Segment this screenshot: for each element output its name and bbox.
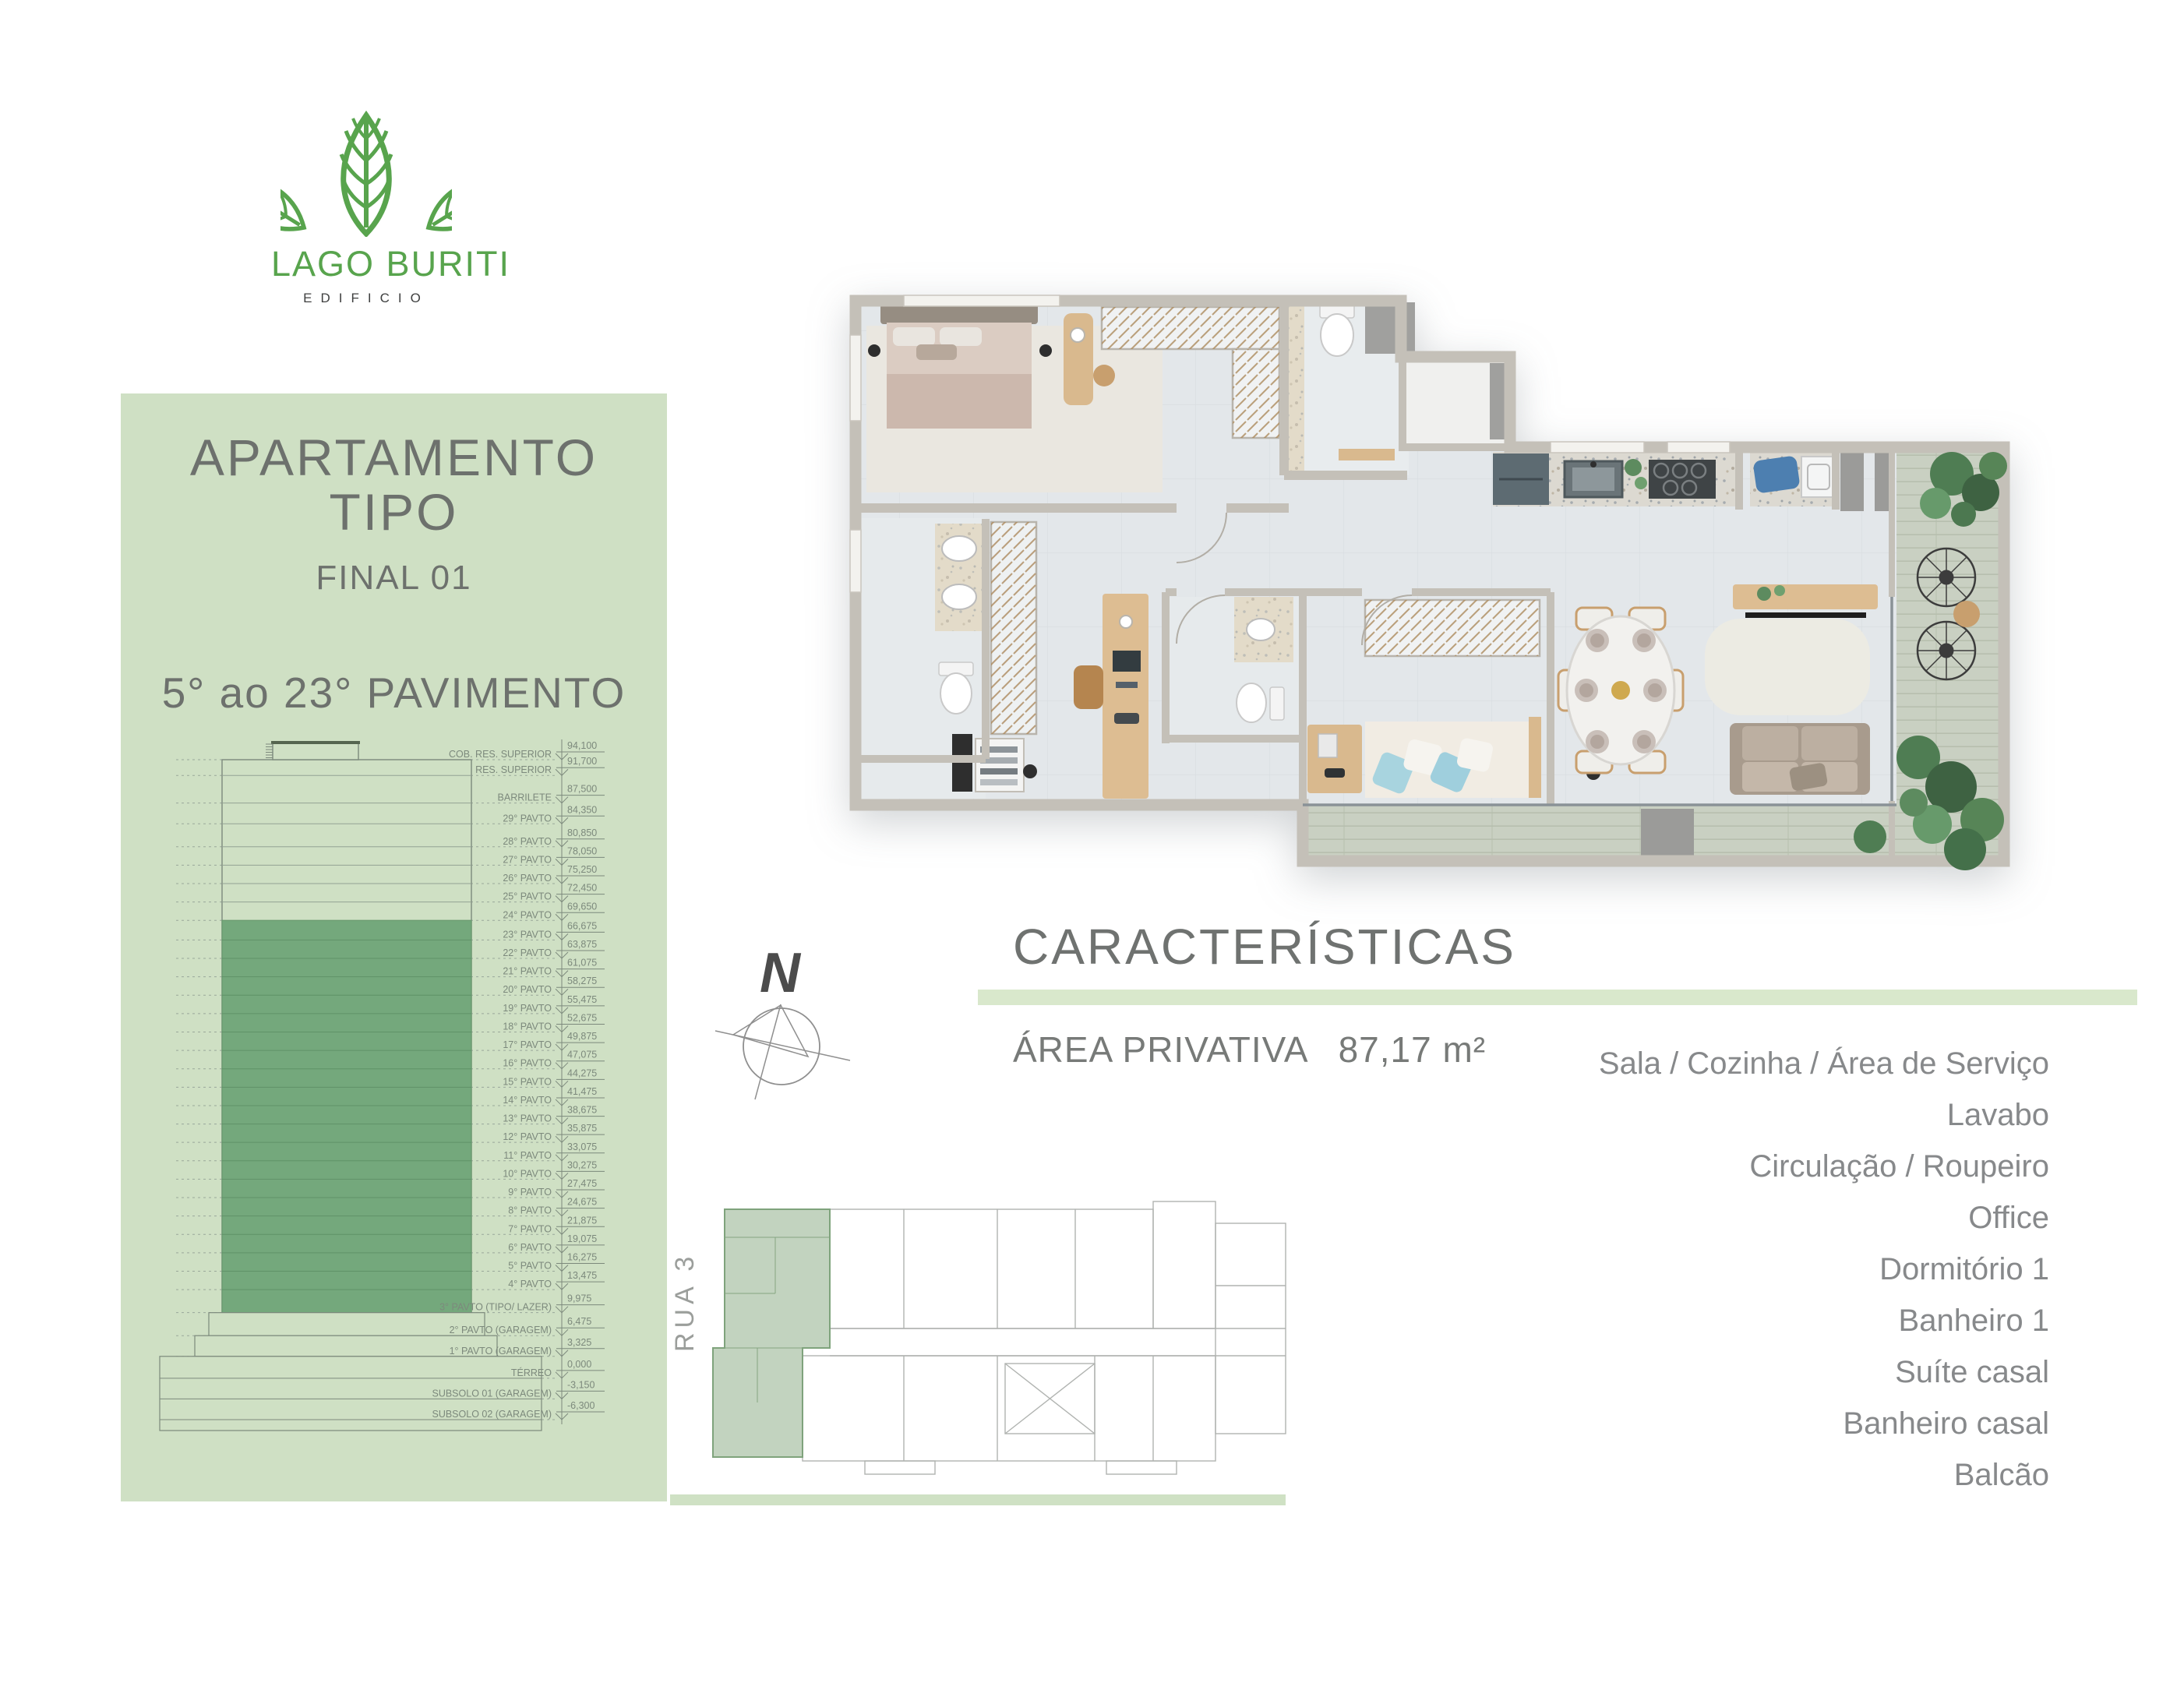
service-door [1840, 450, 1864, 511]
elevation-level-value: 9,975 [567, 1293, 591, 1304]
elevation-level-value: 58,275 [567, 976, 597, 986]
elevation-level-value: 87,500 [567, 784, 597, 795]
elevation-level-label: SUBSOLO 02 (GARAGEM) [432, 1409, 552, 1420]
elevation-level-value: 38,675 [567, 1105, 597, 1116]
street-label: RUA 3 [670, 1252, 700, 1352]
elevation-level-value: 94,100 [567, 740, 597, 751]
room-list: Sala / Cozinha / Área de ServiçoLavaboCi… [1599, 1038, 2049, 1501]
floor-plan [826, 257, 2010, 896]
elevation-level-value: 16,275 [567, 1252, 597, 1263]
elevation-level-label: 3° PAVTO (TIPO/ LAZER) [439, 1302, 552, 1313]
ironing-board-icon [1752, 455, 1800, 493]
elevation-level-value: 80,850 [567, 827, 597, 838]
elevation-level-label: 2° PAVTO (GARAGEM) [450, 1325, 552, 1335]
elevation-level-label: RES. SUPERIOR [475, 764, 552, 775]
elevation-level-label: 19° PAVTO [503, 1003, 552, 1014]
closet-roupeiro [991, 522, 1036, 734]
office-chair [1074, 665, 1103, 709]
laundry-tank-icon [1801, 457, 1836, 497]
room-item: Sala / Cozinha / Área de Serviço [1599, 1038, 2049, 1089]
apartment-info-panel: APARTAMENTO TIPO FINAL 01 5° ao 23° PAVI… [121, 393, 667, 1501]
elevation-level-label: 4° PAVTO [508, 1279, 552, 1290]
elevation-level-value: 24,675 [567, 1197, 597, 1208]
elevation-level-label: 20° PAVTO [503, 984, 552, 995]
side-table [1953, 601, 1980, 627]
elevation-level-label: 11° PAVTO [503, 1150, 552, 1161]
elevation-level-value: 13,475 [567, 1270, 597, 1281]
floor-plate-outline [803, 1201, 1286, 1474]
elevation-level-value: 41,475 [567, 1086, 597, 1097]
elevation-level-label: 12° PAVTO [503, 1131, 552, 1142]
toilet-icon [940, 673, 972, 714]
tv-console [1733, 584, 1878, 609]
vanity-stool [1093, 365, 1115, 386]
sink-icon [942, 584, 976, 609]
wire-chair-icon [1918, 622, 1975, 679]
bathroom-1 [1234, 597, 1293, 722]
elevation-level-value: 47,075 [567, 1050, 597, 1060]
elevation-level-value: 3,325 [567, 1337, 591, 1348]
elevation-level-label: 26° PAVTO [503, 873, 552, 884]
elevation-level-label: 15° PAVTO [503, 1076, 552, 1087]
panel-title-line1: APARTAMENTO [121, 431, 667, 485]
wire-chair-icon [1918, 549, 1975, 606]
elevation-level-value: 66,675 [567, 920, 597, 931]
elevation-level-value: 91,700 [567, 756, 597, 767]
building-elevation-diagram: COB. RES. SUPERIOR94,100RES. SUPERIOR91,… [125, 736, 662, 1488]
suite-vanity-desk [1064, 313, 1093, 405]
elevation-level-label: 10° PAVTO [503, 1168, 552, 1179]
elevation-level-label: 17° PAVTO [503, 1039, 552, 1050]
elevation-level-value: -3,150 [567, 1379, 595, 1390]
characteristics-divider [978, 990, 2137, 1005]
elevation-level-value: 21,875 [567, 1215, 597, 1226]
sink-icon [1247, 619, 1275, 640]
room-item: Dormitório 1 [1599, 1244, 2049, 1295]
vent-shaft [1365, 302, 1415, 354]
room-item: Lavabo [1599, 1089, 2049, 1141]
elevation-level-label: 22° PAVTO [503, 947, 552, 958]
elevation-level-label: 1° PAVTO (GARAGEM) [450, 1346, 552, 1357]
elevation-level-value: 61,075 [567, 958, 597, 969]
leaf-logo-icon [280, 103, 452, 237]
monitor-icon [1113, 651, 1141, 672]
room-item: Balcão [1599, 1449, 2049, 1501]
bottom-green-strip [670, 1494, 1286, 1505]
elevation-level-value: 72,450 [567, 883, 597, 894]
room-item: Suíte casal [1599, 1346, 2049, 1398]
site-key-plan: RUA 3 [670, 1200, 1293, 1512]
elevation-level-label: 8° PAVTO [508, 1205, 552, 1216]
tv-icon [1745, 612, 1866, 618]
private-area-label: ÁREA PRIVATIVA [1013, 1029, 1309, 1070]
elevation-level-label: 9° PAVTO [508, 1187, 552, 1198]
elevation-level-label: 16° PAVTO [503, 1058, 552, 1069]
sofa [1730, 723, 1870, 795]
private-area-line: ÁREA PRIVATIVA87,17 m² [1013, 1028, 1486, 1071]
elevation-level-label: 27° PAVTO [503, 854, 552, 865]
elevation-level-value: 30,275 [567, 1159, 597, 1170]
elevation-level-value: 78,050 [567, 845, 597, 856]
elevation-level-value: 75,250 [567, 864, 597, 875]
elevation-level-label: SUBSOLO 01 (GARAGEM) [432, 1388, 552, 1399]
logo-subtitle: EDIFICIO [271, 291, 461, 306]
panel-title-line2: TIPO [121, 485, 667, 540]
compass-icon: N [713, 930, 861, 1124]
elevation-level-label: 28° PAVTO [503, 836, 552, 847]
elevation-level-label: 29° PAVTO [503, 813, 552, 824]
elevation-level-value: 35,875 [567, 1123, 597, 1134]
elevation-level-value: 52,675 [567, 1012, 597, 1023]
logo-title: LAGO BURITI [271, 244, 461, 284]
kitchen [1493, 452, 1738, 506]
suite-bed-headboard [880, 304, 1038, 324]
panel-title: APARTAMENTO TIPO [121, 431, 667, 540]
elevation-level-label: 7° PAVTO [508, 1223, 552, 1234]
elevation-level-value: 27,475 [567, 1178, 597, 1189]
elevation-level-value: 84,350 [567, 804, 597, 815]
elevation-level-label: 18° PAVTO [503, 1021, 552, 1032]
elevation-level-label: 21° PAVTO [503, 966, 552, 977]
elevation-level-value: 49,875 [567, 1031, 597, 1042]
elevation-level-label: BARRILETE [498, 792, 552, 803]
elevation-level-value: 63,875 [567, 939, 597, 950]
private-area-value: 87,17 m² [1339, 1029, 1487, 1070]
elevation-level-label: 6° PAVTO [508, 1242, 552, 1253]
balcony-shaft [1641, 809, 1694, 859]
room-item: Office [1599, 1192, 2049, 1244]
room-item: Banheiro 1 [1599, 1295, 2049, 1346]
toilet-icon [1237, 683, 1266, 722]
elevation-level-label: 23° PAVTO [503, 929, 552, 940]
elevation-level-value: 19,075 [567, 1233, 597, 1244]
panel-floor-range: 5° ao 23° PAVIMENTO [121, 668, 667, 718]
bedside-lamp-icon [1039, 344, 1052, 357]
stove-icon [1649, 460, 1716, 499]
panel-final: FINAL 01 [121, 559, 667, 598]
elevation-level-label: 14° PAVTO [503, 1095, 552, 1106]
elevation-level-value: 69,650 [567, 901, 597, 912]
characteristics-heading: CARACTERÍSTICAS [1013, 918, 1516, 976]
elevation-level-label: 24° PAVTO [503, 909, 552, 920]
elevation-level-label: TÉRREO [511, 1367, 552, 1378]
highlighted-unit [713, 1209, 830, 1457]
elevation-level-label: 5° PAVTO [508, 1261, 552, 1272]
room-item: Circulação / Roupeiro [1599, 1141, 2049, 1192]
elevation-level-value: 44,275 [567, 1067, 597, 1078]
compass-north-label: N [760, 942, 802, 1004]
elevation-level-value: -6,300 [567, 1400, 595, 1411]
elevation-level-value: 55,475 [567, 994, 597, 1005]
elevation-level-label: 25° PAVTO [503, 891, 552, 902]
room-item: Banheiro casal [1599, 1398, 2049, 1449]
bedside-lamp-icon [868, 344, 880, 357]
elevation-level-value: 6,475 [567, 1316, 591, 1327]
elevation-level-value: 0,000 [567, 1359, 591, 1370]
logo: LAGO BURITI EDIFICIO [271, 103, 461, 306]
brochure-page: LAGO BURITI EDIFICIO APARTAMENTO TIPO FI… [0, 0, 2184, 1683]
toilet-icon [1321, 314, 1353, 356]
shaft-block [1402, 357, 1510, 447]
sink-icon [942, 536, 976, 561]
elevation-level-value: 33,075 [567, 1141, 597, 1152]
elevation-level-label: COB. RES. SUPERIOR [449, 749, 552, 760]
elevation-level-label: 13° PAVTO [503, 1113, 552, 1124]
living-rug [1705, 619, 1870, 715]
